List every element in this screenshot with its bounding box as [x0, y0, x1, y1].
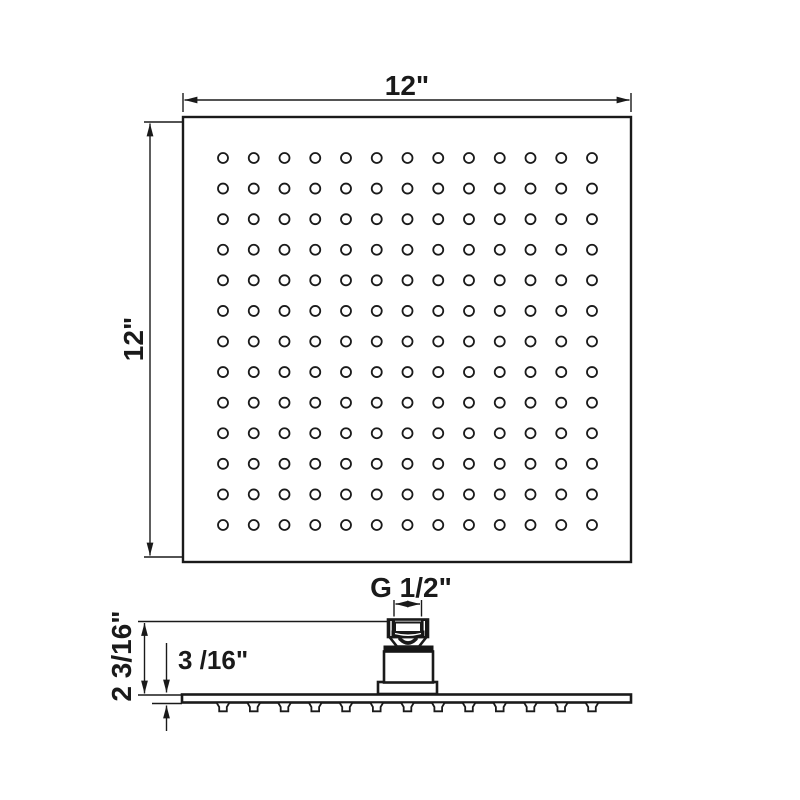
nozzle-hole: [341, 275, 351, 285]
nozzle-hole: [526, 489, 536, 499]
drawing-canvas: 12" 12": [0, 0, 800, 800]
nozzle-hole: [526, 428, 536, 438]
nozzle-hole: [341, 489, 351, 499]
nozzle-hole: [403, 214, 413, 224]
nozzle-hole: [403, 428, 413, 438]
nozzle-hole: [249, 245, 259, 255]
nozzle-hole: [556, 398, 566, 408]
nozzle-hole: [341, 306, 351, 316]
nozzle-hole: [403, 337, 413, 347]
nozzle-tip: [493, 703, 506, 712]
nozzle-hole: [556, 275, 566, 285]
nozzle-hole: [526, 275, 536, 285]
nozzle-hole: [310, 520, 320, 530]
nozzle-hole: [495, 489, 505, 499]
nozzle-hole: [218, 275, 228, 285]
nozzle-hole: [495, 153, 505, 163]
nozzle-tip: [586, 703, 599, 712]
nozzle-hole: [249, 428, 259, 438]
nozzle-hole: [341, 337, 351, 347]
nozzle-hole: [587, 214, 597, 224]
nozzle-hole: [372, 214, 382, 224]
plate-thickness-label: 3 /16": [178, 645, 248, 675]
nozzle-tip: [432, 703, 445, 712]
nozzle-hole: [310, 153, 320, 163]
nozzle-hole: [587, 153, 597, 163]
nozzle-hole: [433, 398, 443, 408]
nozzle-hole: [587, 184, 597, 194]
nozzle-hole: [464, 153, 474, 163]
nozzle-hole: [495, 214, 505, 224]
top-view: 12" 12": [118, 70, 631, 562]
nozzle-tip: [340, 703, 353, 712]
nozzle-hole: [433, 275, 443, 285]
nozzle-hole: [310, 489, 320, 499]
nozzle-hole: [556, 306, 566, 316]
nozzle-hole: [310, 367, 320, 377]
nozzle-hole: [280, 367, 290, 377]
nozzle-hole: [341, 184, 351, 194]
nozzle-hole: [587, 337, 597, 347]
nozzle-hole: [464, 245, 474, 255]
nozzle-hole: [587, 428, 597, 438]
nozzle-hole: [526, 398, 536, 408]
nozzle-hole: [556, 153, 566, 163]
nozzle-hole: [372, 153, 382, 163]
nozzle-hole: [495, 184, 505, 194]
nozzle-hole: [218, 398, 228, 408]
nozzle-hole: [249, 337, 259, 347]
nozzle-hole: [280, 428, 290, 438]
nozzle-hole: [280, 275, 290, 285]
nozzle-hole: [218, 245, 228, 255]
nozzle-hole: [341, 245, 351, 255]
nozzle-hole: [587, 367, 597, 377]
nozzle-hole: [372, 520, 382, 530]
nozzle-hole: [218, 184, 228, 194]
nozzle-hole: [556, 367, 566, 377]
nozzle-hole: [495, 337, 505, 347]
nozzle-hole: [218, 520, 228, 530]
nozzle-tip: [370, 703, 383, 712]
nozzle-hole: [495, 306, 505, 316]
nozzle-hole: [433, 184, 443, 194]
nozzle-hole: [433, 245, 443, 255]
nozzle-hole: [526, 520, 536, 530]
nozzle-hole: [249, 398, 259, 408]
nozzle-hole: [526, 306, 536, 316]
nozzle-hole: [403, 459, 413, 469]
nut-face-window: [395, 623, 421, 633]
nozzle-hole: [433, 459, 443, 469]
nozzle-hole: [495, 245, 505, 255]
nozzle-hole: [464, 428, 474, 438]
nozzle-hole: [372, 398, 382, 408]
nozzle-tip: [401, 703, 414, 712]
nozzle-hole: [433, 306, 443, 316]
inlet-connector: [378, 620, 437, 695]
nozzle-hole: [433, 489, 443, 499]
nozzle-hole: [587, 275, 597, 285]
nozzle-hole: [341, 367, 351, 377]
top-width-dimension-label: 12": [385, 70, 429, 101]
nozzle-hole: [341, 459, 351, 469]
nozzle-hole: [556, 459, 566, 469]
nozzle-hole: [341, 428, 351, 438]
nozzle-hole: [403, 367, 413, 377]
nozzle-hole: [372, 459, 382, 469]
side-view: G 1/2" 2 3/16" 3 /16": [106, 572, 631, 731]
nozzle-hole: [464, 398, 474, 408]
nozzle-hole: [587, 489, 597, 499]
nozzle-hole: [587, 245, 597, 255]
nozzle-hole: [280, 489, 290, 499]
nozzle-hole: [372, 184, 382, 194]
nozzle-hole: [556, 245, 566, 255]
nozzle-hole: [403, 184, 413, 194]
nozzle-hole: [310, 459, 320, 469]
nozzle-hole: [495, 520, 505, 530]
nozzle-hole: [464, 337, 474, 347]
nozzle-hole: [280, 306, 290, 316]
nozzle-hole: [341, 153, 351, 163]
nozzle-hole: [249, 184, 259, 194]
nozzle-hole: [403, 520, 413, 530]
nozzle-hole: [372, 367, 382, 377]
nozzle-hole: [556, 520, 566, 530]
width-dimension: 12": [183, 70, 631, 112]
nozzle-hole: [280, 398, 290, 408]
nozzle-hole: [526, 367, 536, 377]
nozzle-hole: [403, 153, 413, 163]
nozzle-hole: [310, 184, 320, 194]
nozzle-hole: [341, 398, 351, 408]
nozzle-hole: [218, 428, 228, 438]
nozzle-tip: [463, 703, 476, 712]
nozzle-hole: [464, 367, 474, 377]
nozzle-hole: [403, 398, 413, 408]
nozzle-row: [217, 703, 599, 712]
nozzle-hole: [310, 337, 320, 347]
nozzle-tip: [524, 703, 537, 712]
nozzle-hole: [556, 184, 566, 194]
nozzle-hole: [587, 459, 597, 469]
nozzle-hole: [249, 489, 259, 499]
height-dimension: 12": [118, 122, 183, 557]
plate-thickness-dimension: 3 /16": [152, 643, 248, 731]
nozzle-hole: [556, 428, 566, 438]
nozzle-tip: [278, 703, 291, 712]
nozzle-hole: [587, 398, 597, 408]
showerhead-plate-profile: [182, 695, 631, 703]
nozzle-hole: [372, 306, 382, 316]
nozzle-hole: [495, 367, 505, 377]
nozzle-hole: [249, 367, 259, 377]
nozzle-hole: [249, 459, 259, 469]
nozzle-tip: [217, 703, 230, 712]
nozzle-hole: [403, 306, 413, 316]
nozzle-hole: [372, 489, 382, 499]
nozzle-tip: [309, 703, 322, 712]
nozzle-hole: [310, 214, 320, 224]
nozzle-hole: [218, 306, 228, 316]
nozzle-hole: [464, 275, 474, 285]
overall-height-label: 2 3/16": [106, 610, 137, 701]
nozzle-hole: [280, 520, 290, 530]
nozzle-hole: [218, 367, 228, 377]
thread-dimension: G 1/2": [370, 572, 452, 617]
nozzle-hole: [433, 153, 443, 163]
nozzle-hole: [526, 214, 536, 224]
nozzle-hole: [495, 428, 505, 438]
nozzle-tip: [555, 703, 568, 712]
nozzle-hole: [464, 214, 474, 224]
left-height-dimension-label: 12": [118, 317, 149, 361]
nozzle-hole: [310, 275, 320, 285]
nozzle-hole: [280, 459, 290, 469]
nozzle-hole: [526, 245, 536, 255]
nozzle-hole: [218, 337, 228, 347]
nozzle-hole: [310, 245, 320, 255]
nozzle-hole: [433, 520, 443, 530]
nozzle-hole: [495, 275, 505, 285]
showerhead-technical-drawing: 12" 12": [0, 0, 800, 800]
nozzle-hole: [249, 520, 259, 530]
nozzle-hole: [310, 398, 320, 408]
nozzle-hole: [310, 428, 320, 438]
nozzle-hole: [249, 306, 259, 316]
nozzle-hole: [280, 337, 290, 347]
nozzle-hole: [526, 459, 536, 469]
nozzle-hole: [587, 520, 597, 530]
nozzle-hole: [464, 489, 474, 499]
nozzle-hole: [341, 520, 351, 530]
nozzle-hole: [526, 153, 536, 163]
nozzle-hole: [587, 306, 597, 316]
nozzle-hole: [218, 489, 228, 499]
nozzle-hole: [556, 214, 566, 224]
nozzle-hole: [280, 245, 290, 255]
nozzle-hole: [526, 337, 536, 347]
nozzle-hole: [218, 459, 228, 469]
nozzle-tip: [247, 703, 260, 712]
nozzle-hole: [372, 337, 382, 347]
nozzle-hole: [249, 214, 259, 224]
nozzle-hole: [249, 275, 259, 285]
nozzle-hole: [556, 337, 566, 347]
nozzle-hole: [556, 489, 566, 499]
nozzle-hole: [433, 214, 443, 224]
nozzle-hole: [464, 306, 474, 316]
nozzle-hole: [310, 306, 320, 316]
nozzle-hole: [403, 489, 413, 499]
nozzle-hole: [372, 275, 382, 285]
nozzle-hole: [403, 275, 413, 285]
nozzle-hole: [464, 520, 474, 530]
nozzle-hole: [280, 214, 290, 224]
nozzle-hole: [495, 459, 505, 469]
nozzle-hole: [372, 428, 382, 438]
thread-size-label: G 1/2": [370, 572, 452, 603]
nozzle-hole: [403, 245, 413, 255]
nozzle-hole: [372, 245, 382, 255]
nozzle-hole: [526, 184, 536, 194]
connector-base: [384, 652, 433, 683]
nozzle-hole: [433, 367, 443, 377]
nozzle-hole: [249, 153, 259, 163]
nozzle-hole: [464, 184, 474, 194]
nozzle-hole: [280, 153, 290, 163]
nozzle-hole: [433, 337, 443, 347]
nozzle-hole: [495, 398, 505, 408]
nozzle-hole: [433, 428, 443, 438]
nozzle-hole: [218, 214, 228, 224]
nozzle-hole: [341, 214, 351, 224]
nozzle-hole: [280, 184, 290, 194]
nozzle-hole: [464, 459, 474, 469]
nozzle-hole: [218, 153, 228, 163]
